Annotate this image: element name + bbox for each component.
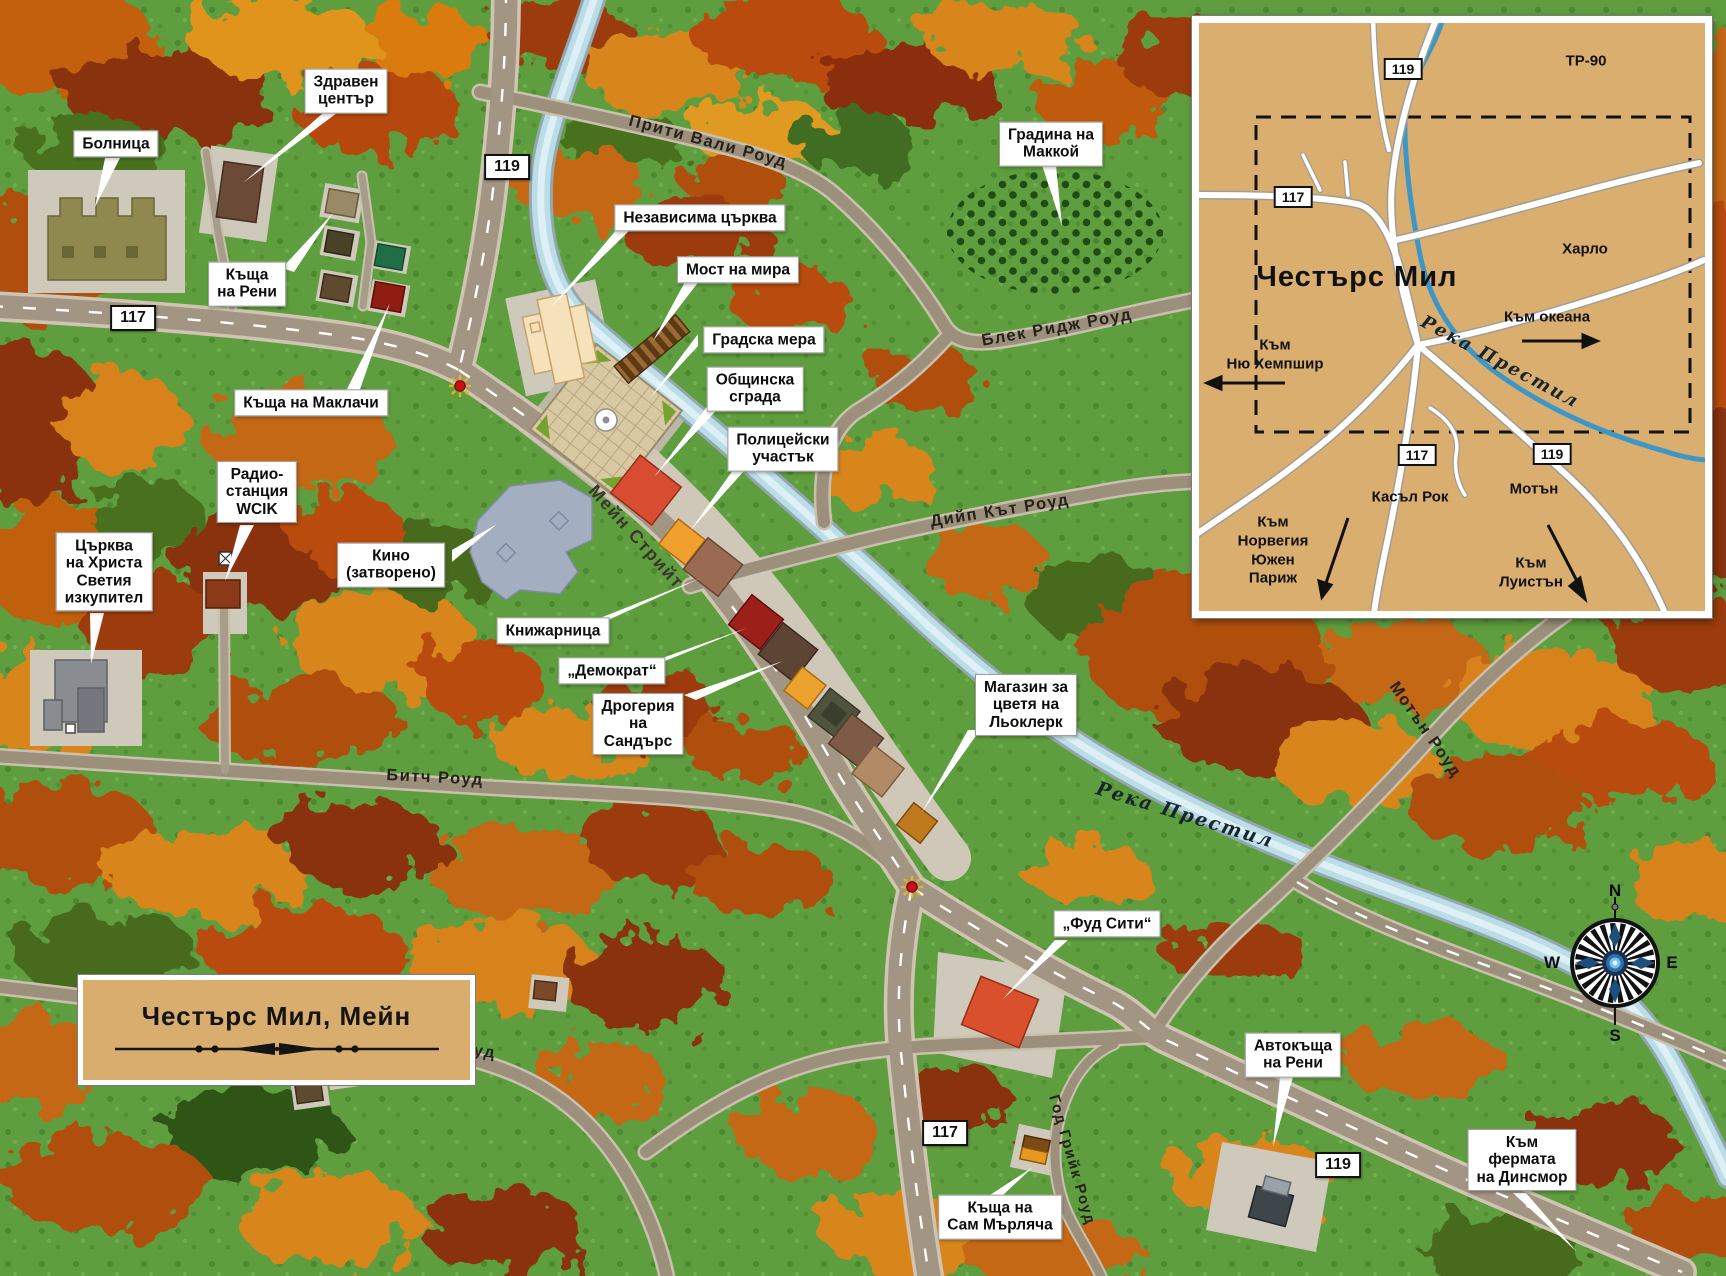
building-hospital xyxy=(48,198,166,280)
inset-direction-ocean: Към океана xyxy=(1504,309,1590,328)
inset-area-motton: Мотън xyxy=(1510,481,1559,500)
legend-title: Честърс Мил, Мейн xyxy=(142,1001,412,1032)
callout-police-station: Полицейски участък xyxy=(727,427,838,472)
inset-direction-norway-south-paris: Към Норвегия Южен Париж xyxy=(1238,514,1309,589)
inset-direction-lewiston: Към Луистън xyxy=(1499,554,1563,592)
callout-mccoy-garden: Градина на Маккой xyxy=(999,122,1103,167)
building-sam-house xyxy=(1020,1135,1050,1164)
compass-south-label: S xyxy=(1609,1026,1620,1046)
inset-title: Честърс Мил xyxy=(1257,259,1458,295)
callout-food-city: „Фуд Сити“ xyxy=(1054,910,1161,937)
inset-shield-117-bottom: 117 xyxy=(1398,444,1437,466)
compass-west-label: W xyxy=(1544,953,1560,973)
traffic-light-icon xyxy=(901,876,923,898)
route-shield-117-south: 117 xyxy=(922,1120,968,1146)
legend-box: Честърс Мил, Мейн xyxy=(78,975,475,1085)
building-cinema xyxy=(470,480,592,600)
compass-north-label: N xyxy=(1609,881,1621,901)
compass-east-label: E xyxy=(1666,953,1677,973)
callout-hospital: Болница xyxy=(73,130,158,157)
inset-shield-119-bottom: 119 xyxy=(1533,443,1572,465)
callout-renie-dealership: Автокъща на Рени xyxy=(1245,1033,1341,1078)
legend-scale-icon xyxy=(107,1038,447,1060)
callout-town-common: Градска мера xyxy=(703,326,824,353)
callout-sam-house: Къща на Сам Мърляча xyxy=(938,1195,1062,1240)
route-shield-119-southeast: 119 xyxy=(1315,1152,1361,1178)
inset-area-harlow: Харло xyxy=(1562,241,1608,260)
callout-peace-bridge: Мост на мира xyxy=(677,256,799,283)
callout-wcik-radio: Радио- станция WCIK xyxy=(217,461,297,523)
inset-area-tr90: ТР-90 xyxy=(1566,53,1607,72)
inset-map: Честърс Мил ТР-90 Харло Касъл Рок Мотън … xyxy=(1192,16,1712,618)
callout-sanders-drugstore: Дрогерия на Сандърс xyxy=(592,693,683,755)
inset-direction-new-hampshire: Към Ню Хемпшир xyxy=(1226,336,1323,374)
callout-democrat: „Демократ“ xyxy=(558,657,665,684)
callout-christ-church: Църква на Христа Светия изкупител xyxy=(56,532,153,611)
callout-leclerc-flowers: Магазин за цветя на Льоклерк xyxy=(975,674,1077,736)
map-canvas: Болница Здравен център Къща на Рени Къща… xyxy=(0,0,1726,1276)
callout-bookstore: Книжарница xyxy=(497,617,610,644)
inset-shield-119-top: 119 xyxy=(1384,58,1423,80)
callout-cinema: Кино (затворено) xyxy=(337,543,445,588)
callout-mcclatchey-house: Къща на Маклачи xyxy=(234,389,388,416)
callout-town-hall: Общинска сграда xyxy=(707,367,804,412)
inset-area-castle-rock: Касъл Рок xyxy=(1372,489,1449,508)
traffic-light-icon xyxy=(449,375,471,397)
route-shield-117-west: 117 xyxy=(110,305,156,331)
callout-dinsmore-farm: Към фермата на Динсмор xyxy=(1467,1129,1576,1191)
building-health-center xyxy=(216,161,263,222)
inset-shield-117-left: 117 xyxy=(1274,186,1313,208)
route-shield-119-north: 119 xyxy=(484,154,530,180)
callout-renie-house: Къща на Рени xyxy=(208,262,286,307)
callout-health-center: Здравен център xyxy=(305,69,388,114)
callout-independent-church: Независима църква xyxy=(614,204,785,231)
